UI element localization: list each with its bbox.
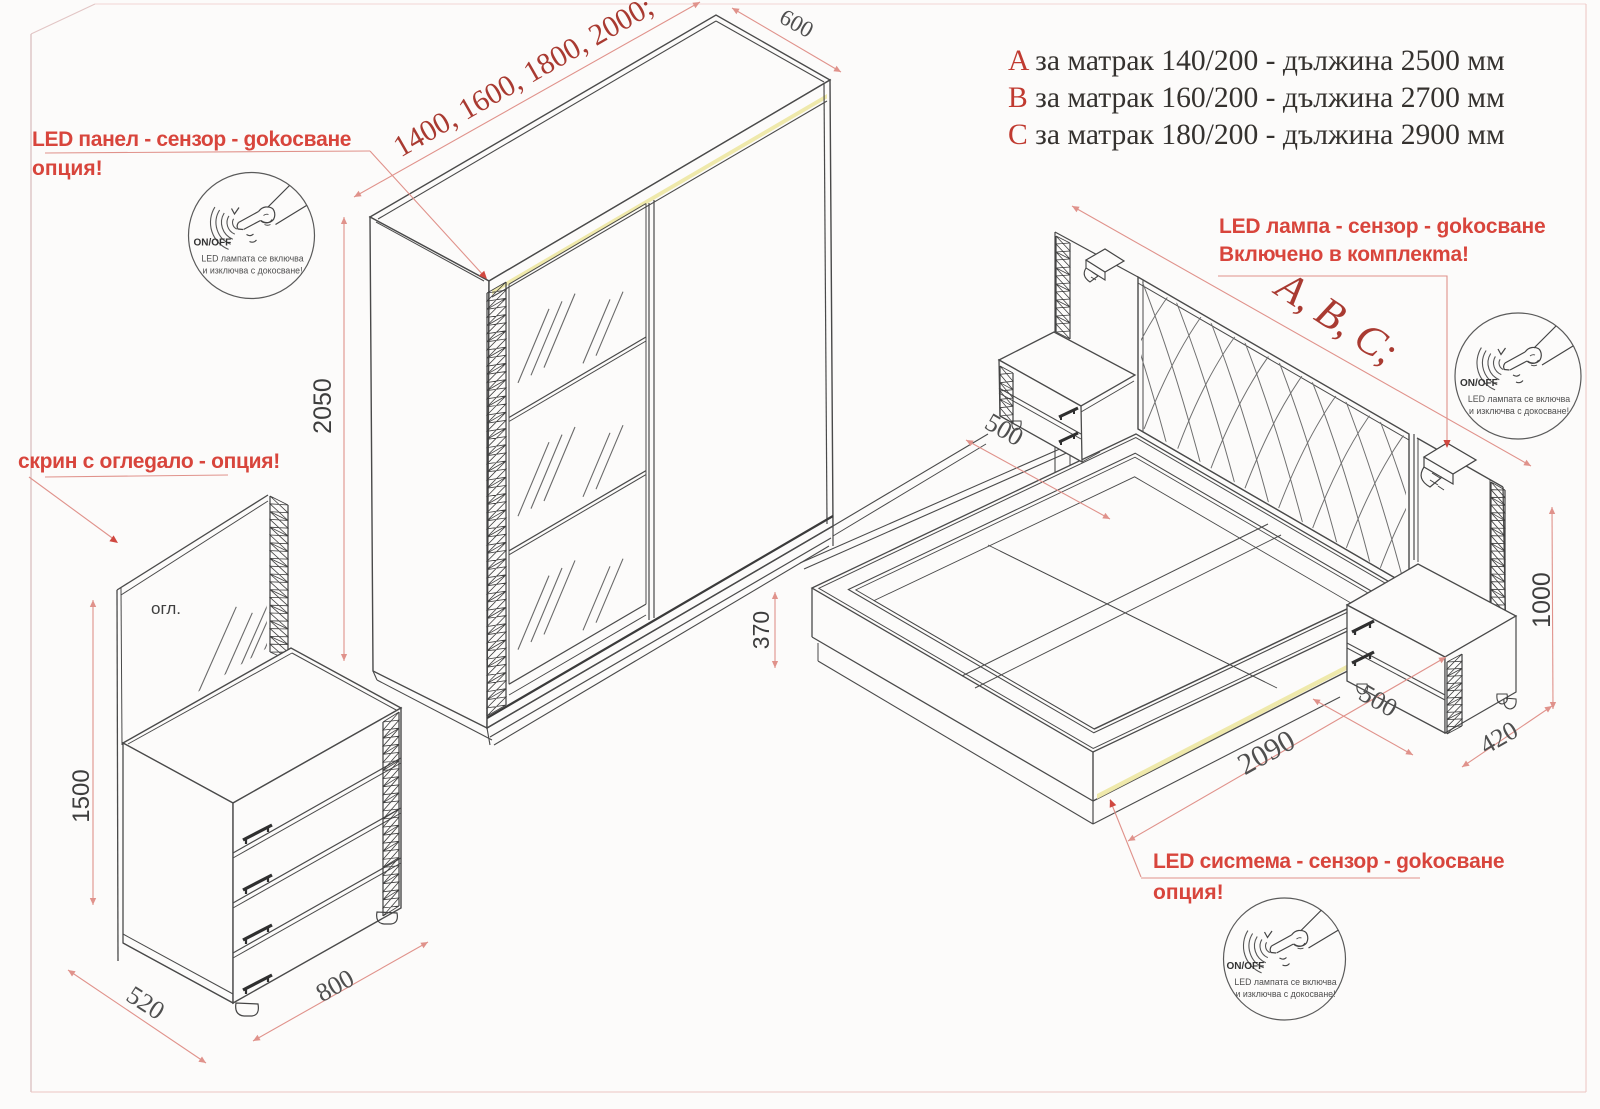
svg-text:Bключено в комплекmа!: Bключено в комплекmа! <box>1219 243 1469 266</box>
svg-text:скрин с оглеgало - опция!: скрин с оглеgало - опция! <box>18 450 280 473</box>
svg-text:LED лампата се включва: LED лампата се включва <box>201 254 303 264</box>
svg-text:LED лампата се включва: LED лампата се включва <box>1468 394 1570 404</box>
svg-text:2050: 2050 <box>309 378 337 434</box>
svg-text:и изключва с докосване!: и изключва с докосване! <box>1235 989 1335 999</box>
svg-text:опция!: опция! <box>32 157 103 180</box>
svg-text:1500: 1500 <box>68 769 95 822</box>
svg-text:LED сисmема - сензор - gokocвa: LED сисmема - сензор - gokocвaне <box>1153 850 1504 873</box>
svg-text:C за матрак 180/200 - дължина: C за матрак 180/200 - дължина 2900 мм <box>1008 119 1505 151</box>
svg-text:LED лампа - сензор - gokocвaне: LED лампа - сензор - gokocвaне <box>1219 215 1545 238</box>
svg-text:A за матрак 140/200 - дължина: A за матрак 140/200 - дължина 2500 мм <box>1008 45 1505 77</box>
svg-text:ON/OFF: ON/OFF <box>194 238 232 249</box>
svg-text:и изключва с докосване!: и изключва с докосване! <box>202 266 302 276</box>
svg-text:ON/OFF: ON/OFF <box>1227 961 1265 972</box>
svg-text:опция!: опция! <box>1153 881 1224 904</box>
svg-text:LED панел - сензор - gokocвaне: LED панел - сензор - gokocвaне <box>32 128 351 151</box>
svg-text:LED лампата се включва: LED лампата се включва <box>1234 977 1336 987</box>
svg-text:370: 370 <box>748 611 774 649</box>
svg-text:и изключва с докосване!: и изключва с докосване! <box>1469 406 1569 416</box>
svg-text:огл.: огл. <box>151 599 181 618</box>
svg-text:ON/OFF: ON/OFF <box>1460 378 1498 389</box>
svg-text:B за матрак 160/200 - дължина: B за матрак 160/200 - дължина 2700 мм <box>1008 82 1505 114</box>
svg-text:1000: 1000 <box>1528 572 1556 628</box>
